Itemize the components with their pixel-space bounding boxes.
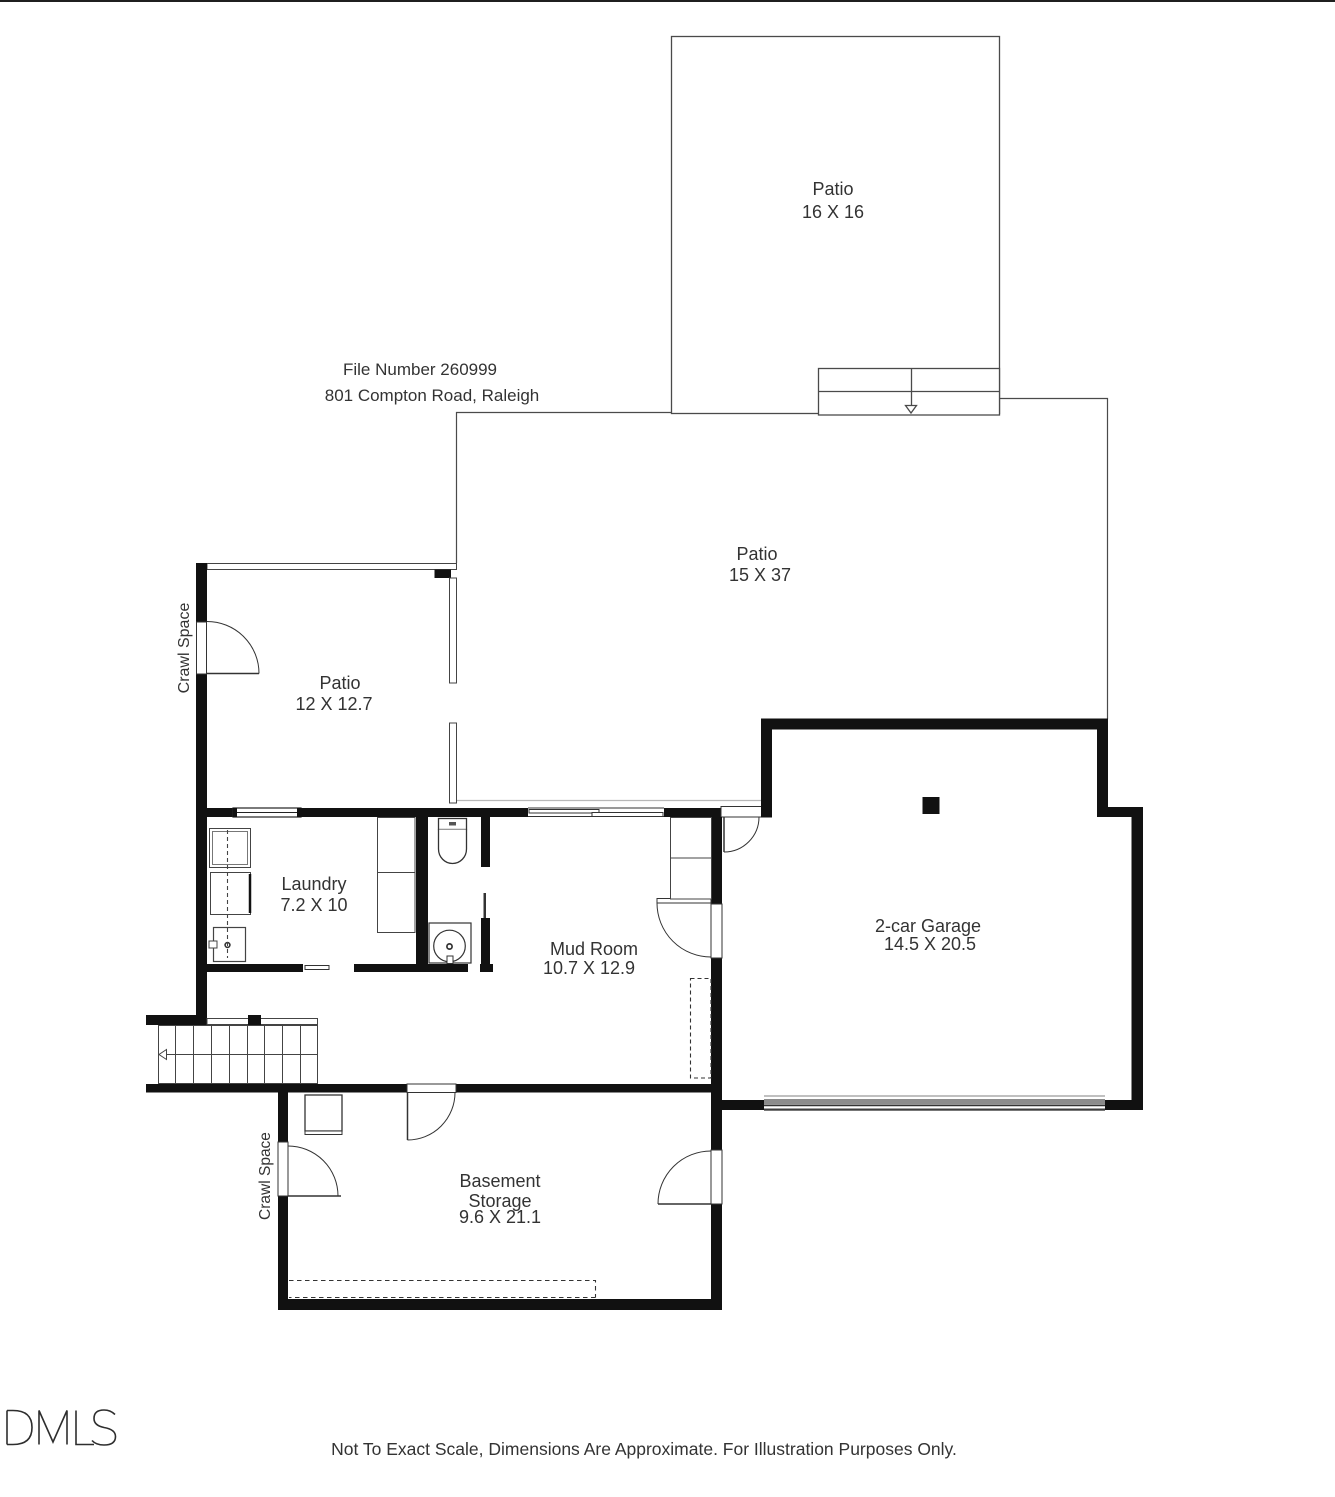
svg-text:12 X 12.7: 12 X 12.7: [295, 694, 372, 714]
svg-text:Mud Room: Mud Room: [550, 939, 638, 959]
svg-text:2-car Garage: 2-car Garage: [875, 916, 981, 936]
svg-text:Laundry: Laundry: [281, 874, 346, 894]
svg-text:9.6 X 21.1: 9.6 X 21.1: [459, 1207, 541, 1227]
svg-text:16 X 16: 16 X 16: [802, 202, 864, 222]
svg-text:15 X 37: 15 X 37: [729, 565, 791, 585]
svg-text:7.2 X 10: 7.2 X 10: [280, 895, 347, 915]
svg-text:Crawl Space: Crawl Space: [257, 1132, 274, 1220]
svg-text:Patio: Patio: [319, 673, 360, 693]
svg-text:Crawl Space: Crawl Space: [176, 603, 193, 694]
svg-text:Basement: Basement: [459, 1171, 540, 1191]
svg-text:Not To Exact Scale, Dimensions: Not To Exact Scale, Dimensions Are Appro…: [331, 1439, 957, 1459]
svg-text:Patio: Patio: [812, 179, 853, 199]
svg-text:Patio: Patio: [736, 544, 777, 564]
svg-text:14.5 X 20.5: 14.5 X 20.5: [884, 934, 976, 954]
svg-text:801 Compton Road, Raleigh: 801 Compton Road, Raleigh: [325, 386, 540, 405]
svg-text:File Number 260999: File Number 260999: [343, 360, 497, 379]
svg-text:10.7 X 12.9: 10.7 X 12.9: [543, 958, 635, 978]
